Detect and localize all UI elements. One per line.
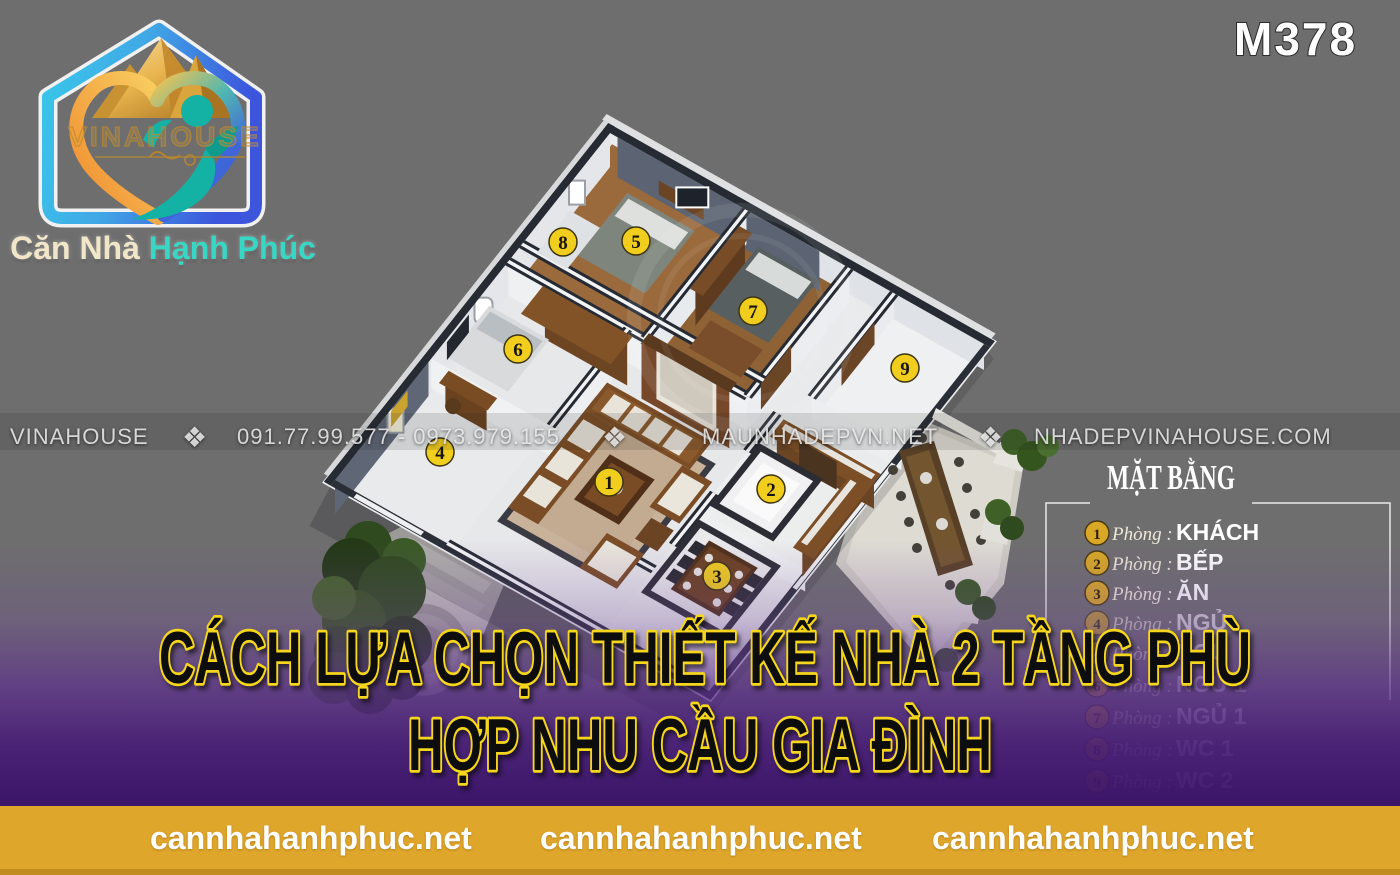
svg-text:CÁCH LỰA CHỌN THIẾT KẾ NHÀ 2 T: CÁCH LỰA CHỌN THIẾT KẾ NHÀ 2 TẦNG PHÙ	[159, 618, 1251, 699]
svg-text:VINAHOUSE: VINAHOUSE	[68, 121, 261, 152]
svg-text:HỢP NHU CẦU GIA ĐÌNH: HỢP NHU CẦU GIA ĐÌNH	[408, 705, 992, 786]
